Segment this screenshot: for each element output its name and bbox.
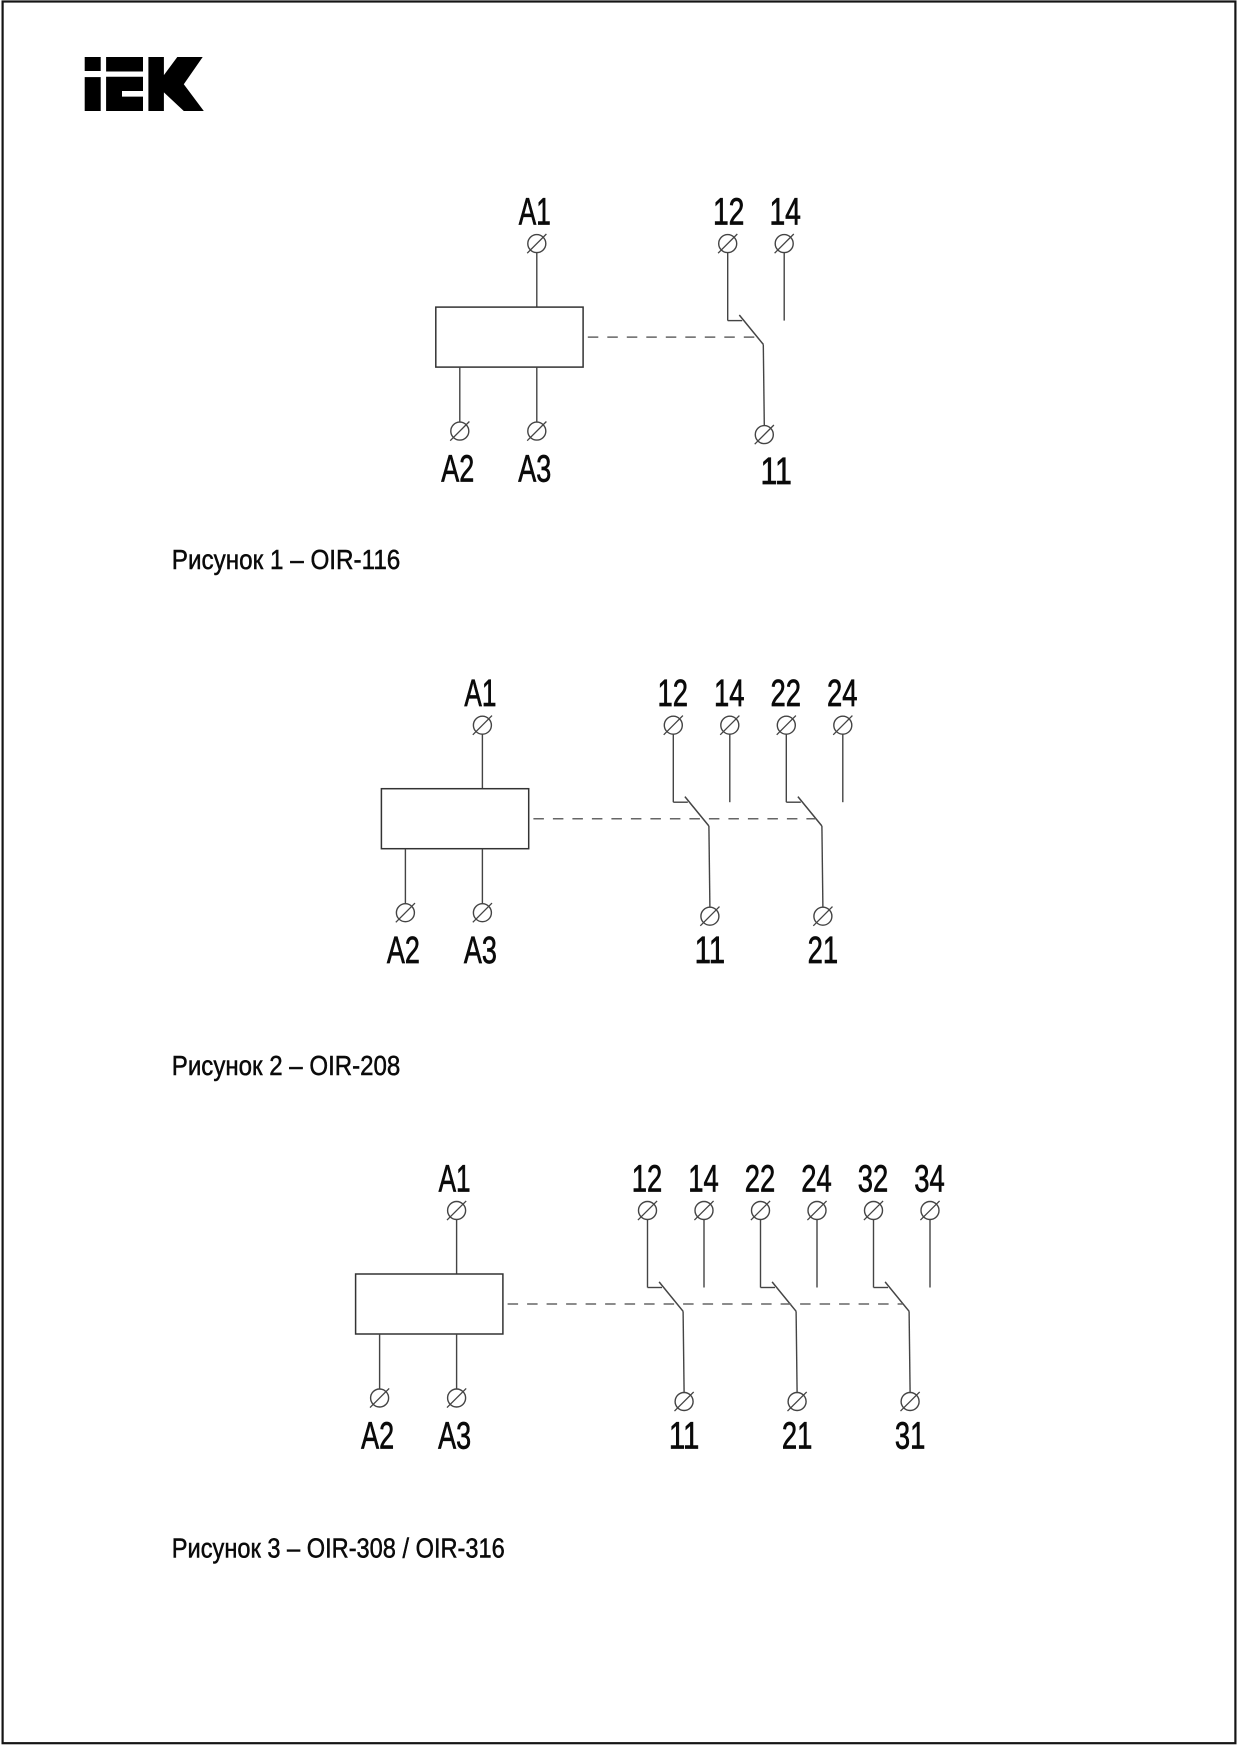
svg-text:12: 12	[658, 673, 689, 715]
svg-text:32: 32	[858, 1159, 889, 1201]
svg-text:Рисунок 1 – OIR-116: Рисунок 1 – OIR-116	[172, 544, 400, 575]
svg-text:Рисунок 3 – OIR-308 / OIR-316: Рисунок 3 – OIR-308 / OIR-316	[172, 1533, 505, 1564]
svg-text:14: 14	[769, 192, 801, 234]
svg-text:A1: A1	[439, 1159, 471, 1201]
svg-text:21: 21	[808, 930, 839, 972]
svg-text:11: 11	[760, 451, 792, 493]
svg-text:31: 31	[895, 1416, 926, 1458]
svg-text:14: 14	[688, 1159, 719, 1201]
svg-text:A3: A3	[464, 930, 497, 972]
svg-text:22: 22	[771, 673, 802, 715]
svg-text:A3: A3	[518, 449, 551, 491]
svg-text:A2: A2	[387, 930, 420, 972]
svg-text:11: 11	[669, 1416, 700, 1458]
svg-text:24: 24	[827, 673, 858, 715]
svg-text:12: 12	[632, 1159, 663, 1201]
svg-text:A2: A2	[361, 1416, 394, 1458]
svg-text:24: 24	[801, 1159, 832, 1201]
svg-text:14: 14	[714, 673, 745, 715]
svg-text:A2: A2	[441, 449, 474, 491]
svg-text:12: 12	[713, 192, 745, 234]
svg-text:A1: A1	[464, 673, 496, 715]
svg-text:A3: A3	[438, 1416, 471, 1458]
svg-text:11: 11	[695, 930, 726, 972]
svg-text:21: 21	[782, 1416, 813, 1458]
svg-text:Рисунок 2 – OIR-208: Рисунок 2 – OIR-208	[172, 1050, 400, 1081]
svg-text:34: 34	[914, 1159, 945, 1201]
svg-text:22: 22	[745, 1159, 776, 1201]
svg-text:A1: A1	[519, 192, 551, 234]
